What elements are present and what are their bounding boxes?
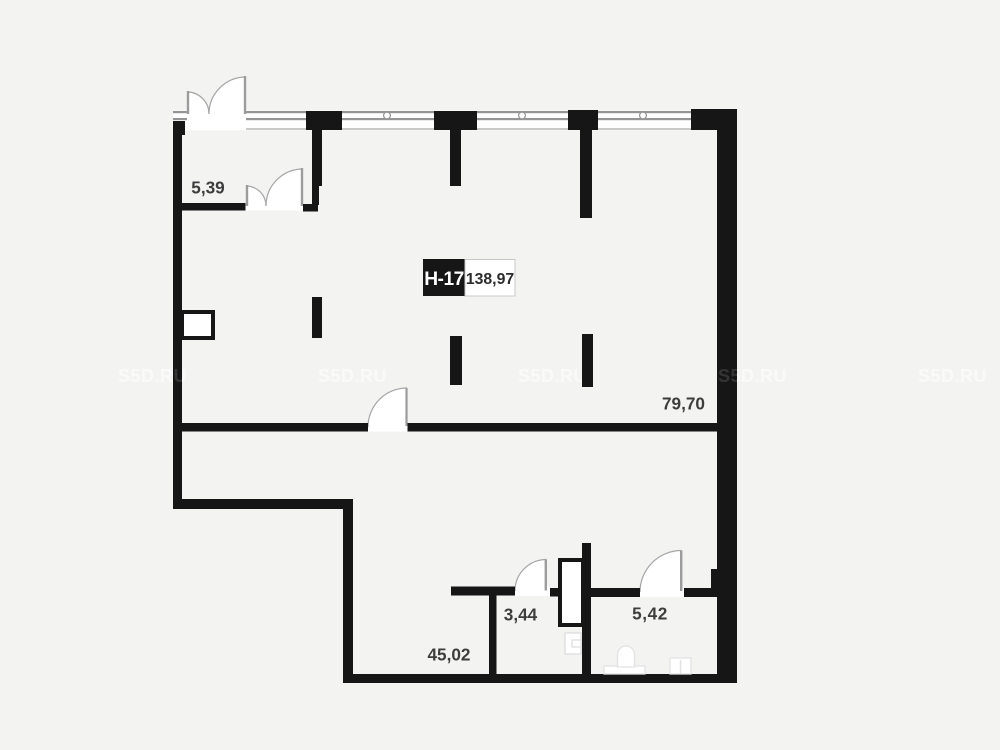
svg-text:S5D.RU: S5D.RU [118, 366, 187, 386]
svg-text:3,44: 3,44 [504, 605, 538, 625]
svg-text:H-17: H-17 [424, 269, 464, 290]
svg-text:79,70: 79,70 [662, 394, 705, 414]
svg-text:138,97: 138,97 [466, 271, 515, 288]
svg-text:S5D.RU: S5D.RU [718, 366, 787, 386]
svg-text:45,02: 45,02 [427, 645, 470, 665]
svg-text:S5D.RU: S5D.RU [318, 366, 387, 386]
svg-text:S5D.RU: S5D.RU [918, 366, 987, 386]
svg-text:5,39: 5,39 [191, 178, 224, 198]
svg-text:5,42: 5,42 [632, 604, 668, 624]
svg-text:S5D.RU: S5D.RU [518, 366, 587, 386]
